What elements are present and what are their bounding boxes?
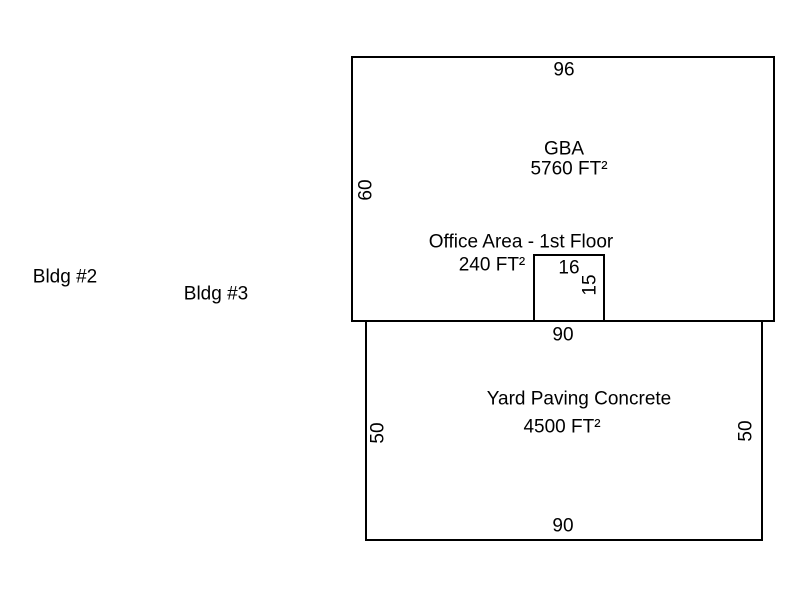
office-right-dimension: 15 <box>581 274 600 295</box>
gba-left-dimension: 60 <box>357 179 376 200</box>
bldg3-label: Bldg #3 <box>184 285 248 304</box>
yard-left-dimension: 50 <box>369 422 388 443</box>
office-area-title: Office Area - 1st Floor <box>429 233 613 252</box>
office-top-dimension: 16 <box>558 259 579 278</box>
office-area-value: 240 FT² <box>459 256 526 275</box>
yard-area-value: 4500 FT² <box>523 418 600 437</box>
gba-area-value: 5760 FT² <box>530 160 607 179</box>
gba-title: GBA <box>544 140 584 159</box>
yard-bottom-dimension: 90 <box>552 517 573 536</box>
bldg2-label: Bldg #2 <box>33 268 97 287</box>
yard-title: Yard Paving Concrete <box>487 390 671 409</box>
sketch-canvas: 96 60 GBA 5760 FT² Office Area - 1st Flo… <box>0 0 800 600</box>
gba-top-dimension: 96 <box>553 61 574 80</box>
yard-top-dimension: 90 <box>552 326 573 345</box>
yard-right-dimension: 50 <box>737 420 756 441</box>
